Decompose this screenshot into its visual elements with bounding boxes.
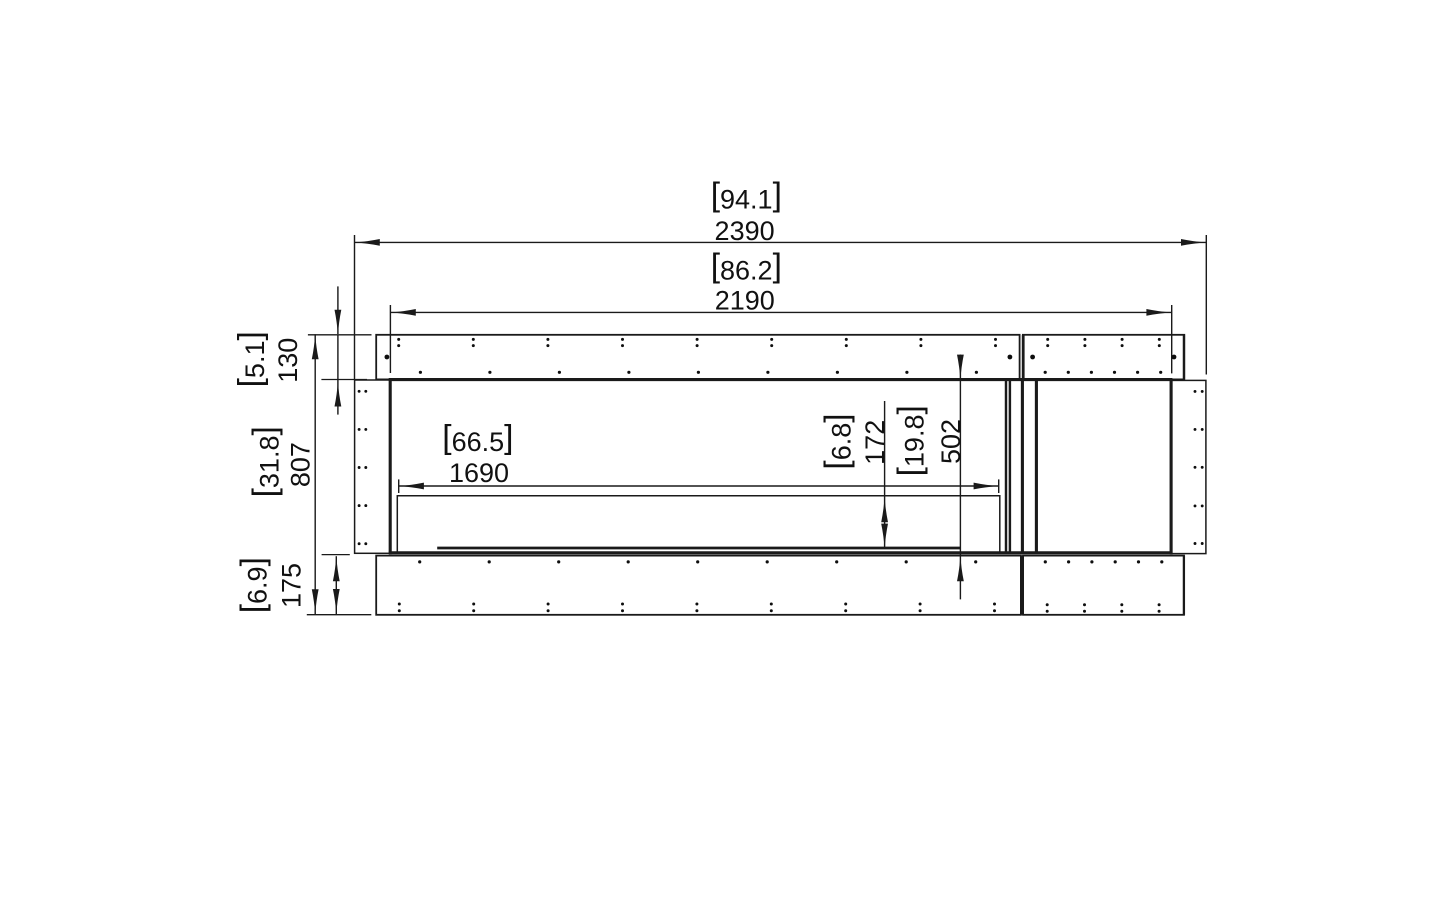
svg-text:502: 502 — [936, 419, 966, 464]
svg-text:172: 172 — [860, 420, 890, 465]
svg-text:807: 807 — [285, 442, 315, 487]
svg-text:2190: 2190 — [715, 286, 775, 316]
svg-text:1690: 1690 — [449, 458, 509, 488]
svg-text:130: 130 — [273, 338, 303, 383]
svg-text:2390: 2390 — [715, 216, 775, 246]
svg-text:175: 175 — [277, 563, 307, 608]
